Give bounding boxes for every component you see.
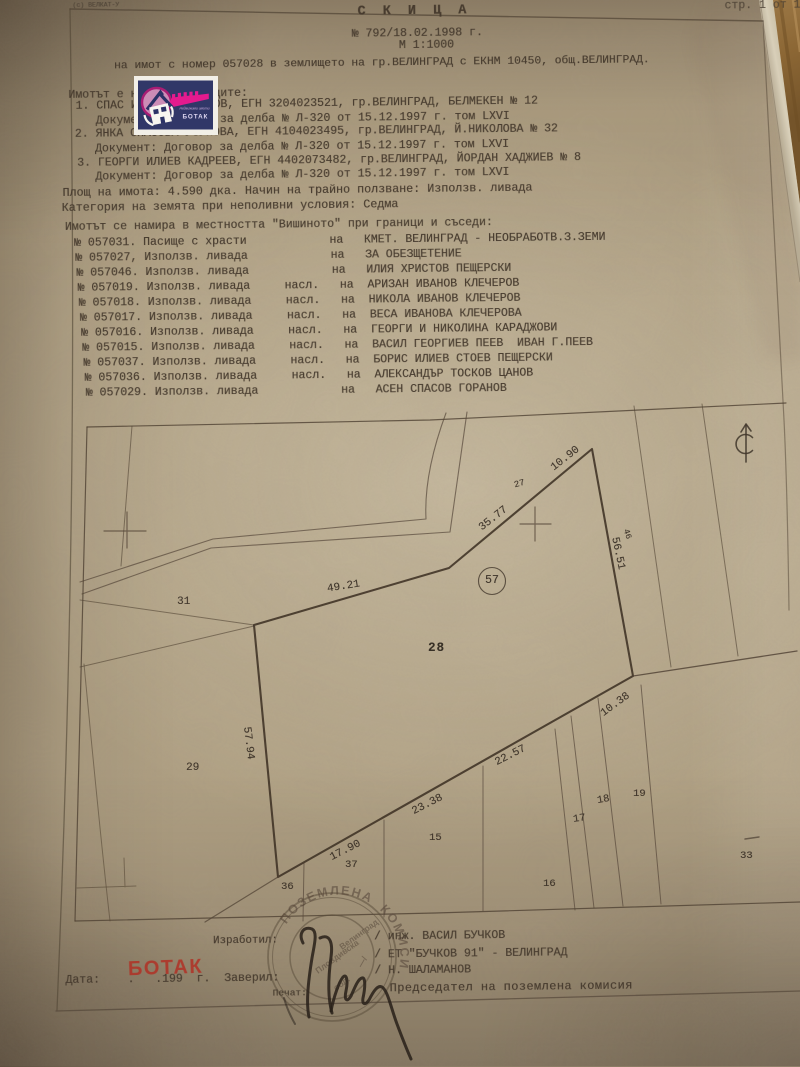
svg-text:БОТАК: БОТАК <box>183 114 209 121</box>
svg-text:Недвижими имоти: Недвижими имоти <box>180 107 210 111</box>
